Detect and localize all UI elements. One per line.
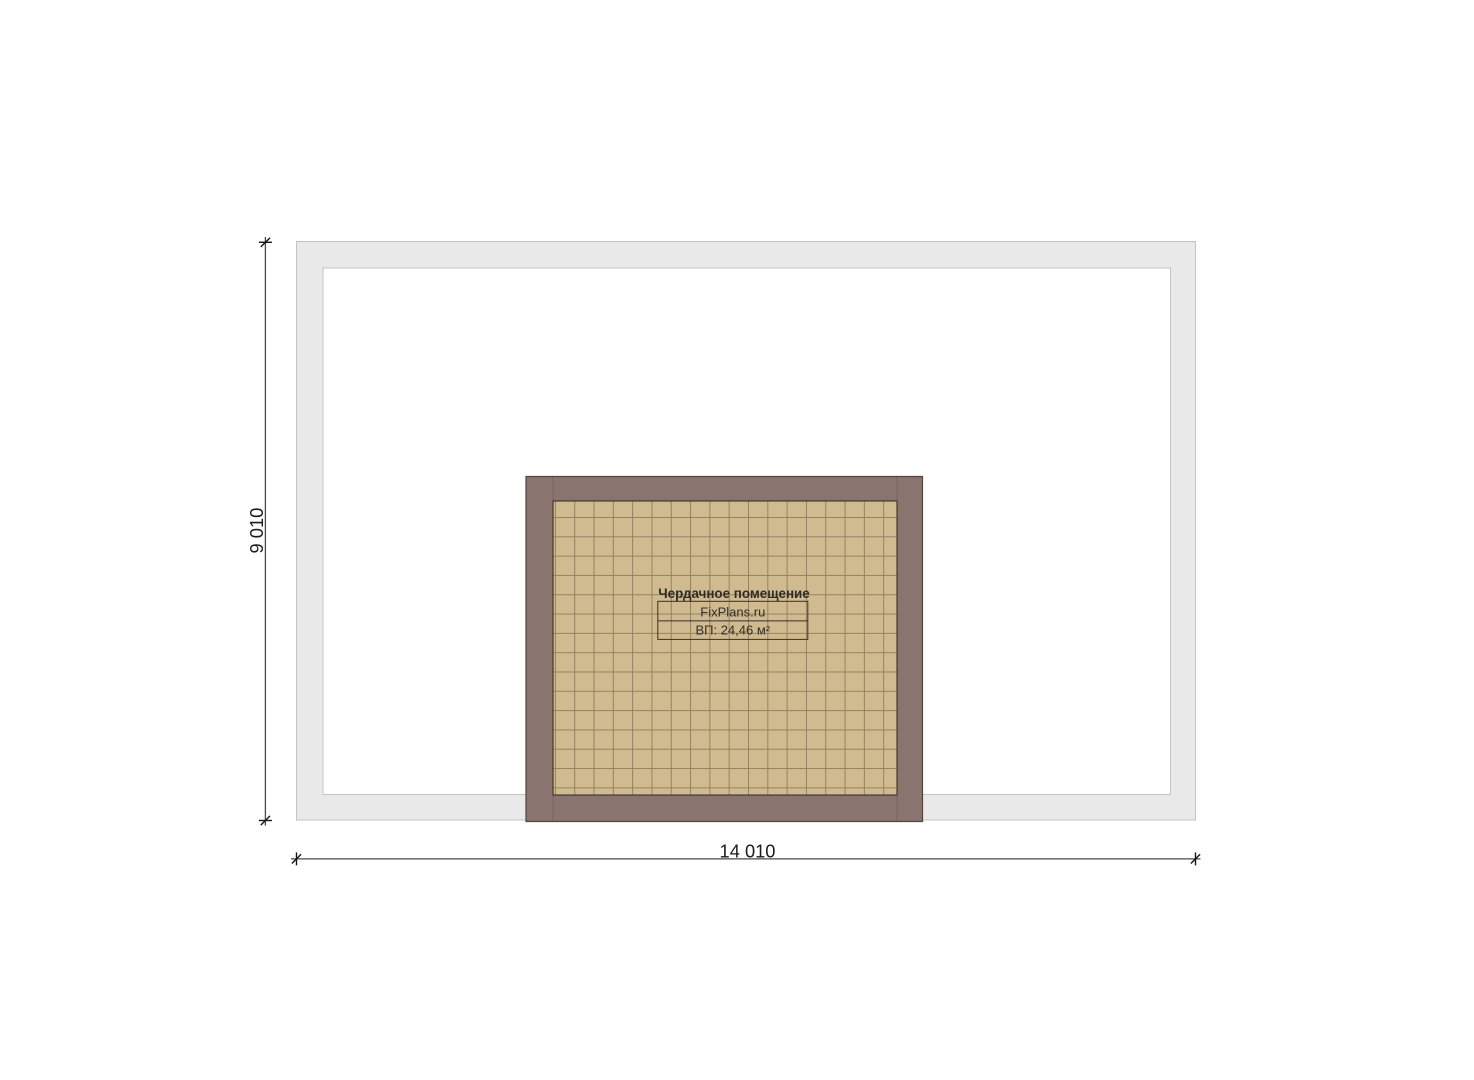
svg-text:9 010: 9 010 xyxy=(246,508,267,554)
svg-text:14 010: 14 010 xyxy=(720,840,776,861)
svg-text:ВП: 24,46 м²: ВП: 24,46 м² xyxy=(695,623,770,638)
svg-text:FixPlans.ru: FixPlans.ru xyxy=(700,605,765,620)
svg-text:Чердачное помещение: Чердачное помещение xyxy=(658,586,809,601)
